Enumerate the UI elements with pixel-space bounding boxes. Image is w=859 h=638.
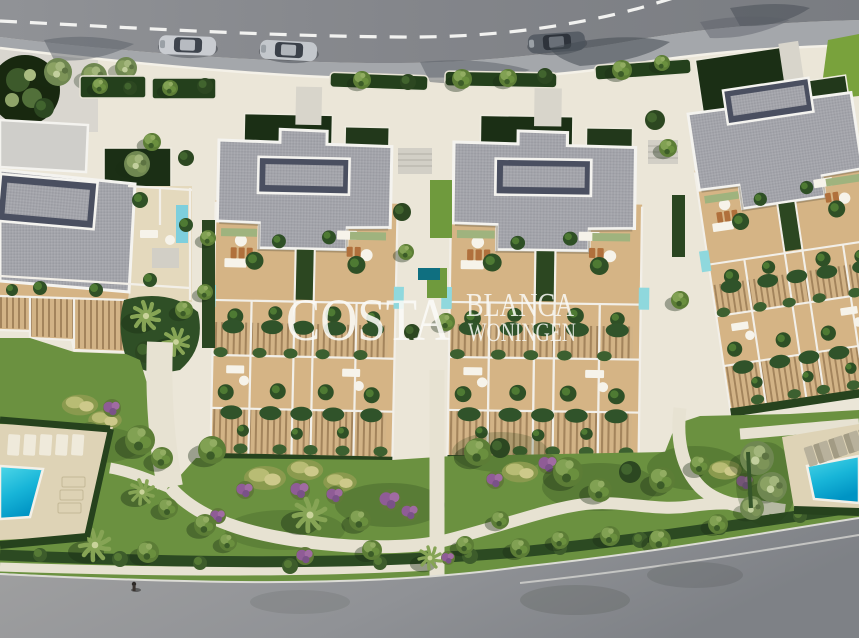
svg-text:COSTA: COSTA — [286, 287, 450, 353]
svg-text:WONINGEN: WONINGEN — [468, 318, 576, 347]
